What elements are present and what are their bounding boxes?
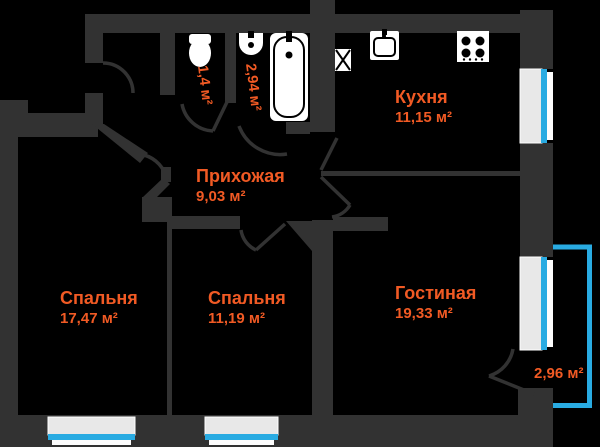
bathtub-icon <box>270 31 308 121</box>
vent-shaft-icon <box>335 49 351 71</box>
living-window <box>520 257 553 350</box>
kitchen-name: Кухня <box>395 87 448 107</box>
hallway-name: Прихожая <box>196 166 285 186</box>
bedroom1-area: 17,47 м² <box>60 310 118 327</box>
kitchen-window <box>520 69 553 143</box>
bedroom2-window <box>205 417 278 445</box>
wall-hall-bottom-b <box>170 216 240 229</box>
floorplan-image: Прихожая 9,03 м² Кухня 11,15 м² Спальня … <box>0 0 600 447</box>
wall-right-lower <box>518 388 553 415</box>
wall-bedroom-divider <box>167 222 172 415</box>
living-name: Гостиная <box>395 283 476 303</box>
wall-entrance-lower <box>85 93 103 127</box>
wall-step-a <box>0 100 28 127</box>
stove-icon <box>457 31 489 62</box>
wall-bathroom-kitchen <box>310 0 335 132</box>
living-area: 19,33 м² <box>395 305 453 322</box>
hallway-area: 9,03 м² <box>196 188 245 205</box>
toilet-icon <box>189 34 211 67</box>
wall-kitchen-separator-line <box>321 171 520 176</box>
bedroom1-name: Спальня <box>60 288 138 308</box>
wall-wc-left <box>160 33 175 95</box>
wall-bedroom1-top <box>18 125 98 137</box>
wall-entrance-upper <box>85 14 103 63</box>
balcony-area: 2,96 м² <box>534 365 583 382</box>
wall-step-b <box>28 113 85 127</box>
wall-wc-bathroom <box>225 33 236 103</box>
wall-left <box>0 125 18 447</box>
wall-living-left-pier <box>312 220 333 415</box>
bedroom2-name: Спальня <box>208 288 286 308</box>
kitchen-area: 11,15 м² <box>395 109 452 126</box>
sink-icon <box>239 31 263 55</box>
kitchen-sink-icon <box>370 29 399 60</box>
wall-living-top-stub <box>333 217 388 231</box>
bedroom2-area: 11,19 м² <box>208 310 265 327</box>
wall-right-middle <box>520 143 553 257</box>
floorplan-svg: Прихожая 9,03 м² Кухня 11,15 м² Спальня … <box>0 0 600 447</box>
wall-bathroom-bottom <box>286 122 310 134</box>
wall-right-upper <box>520 10 553 69</box>
wall-hall-bottom-a <box>142 197 172 222</box>
bedroom1-window <box>48 417 135 445</box>
